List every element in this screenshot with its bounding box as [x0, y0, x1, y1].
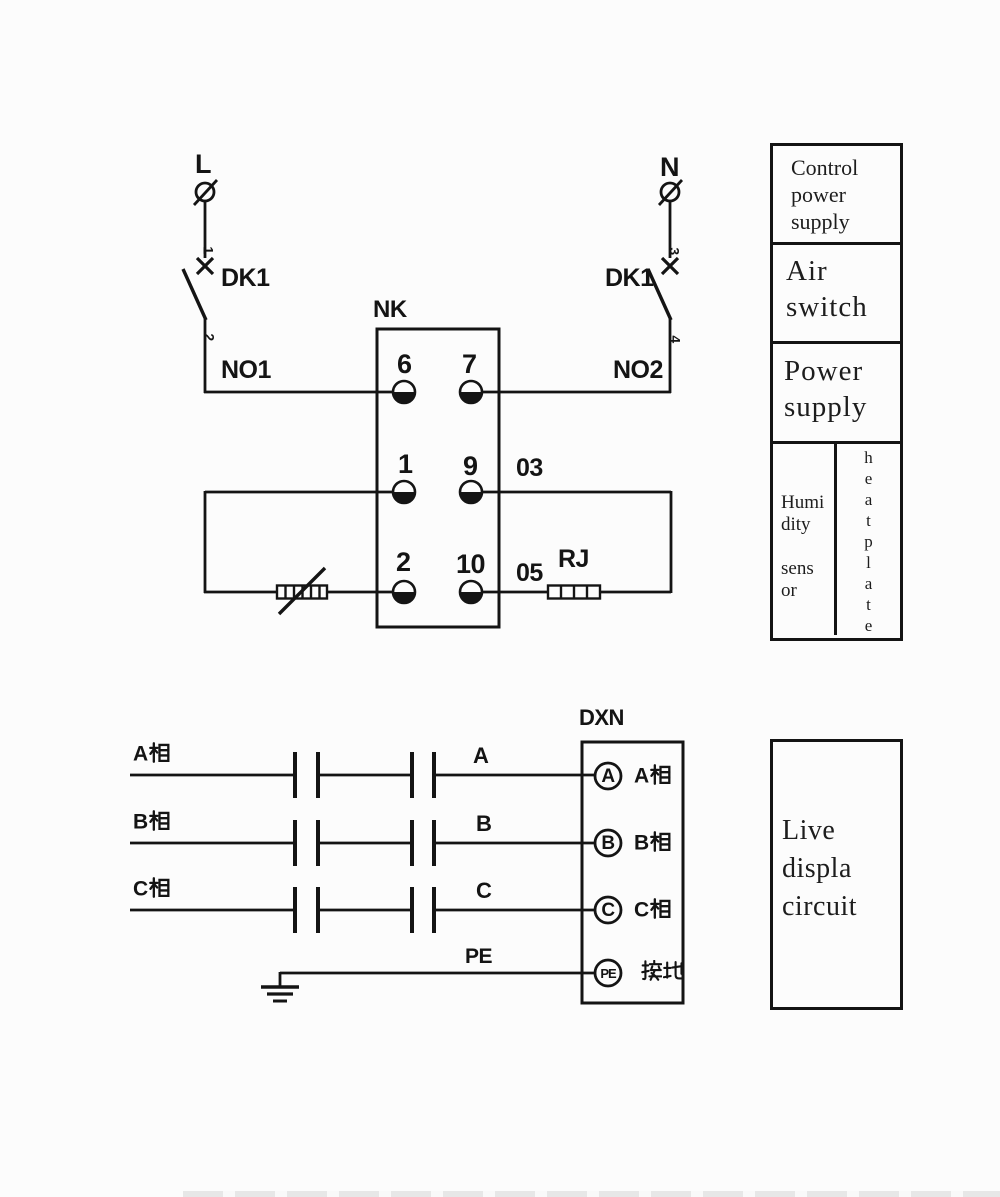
legend-line: sens: [781, 558, 834, 580]
legend-panel: Control power supply Air switch Power su…: [770, 143, 903, 641]
live-display-panel: Live displa circuit: [770, 739, 903, 1010]
dxn-terminal-b-letter: B: [595, 834, 621, 853]
wire-label-pe: PE: [465, 946, 492, 967]
breaker-contact-icon: [197, 258, 213, 274]
cjk-glyph: [149, 742, 170, 763]
nk-terminal-1-label: 1: [398, 451, 413, 478]
legend-letter: a: [837, 489, 900, 510]
nk-terminal-9-label: 9: [463, 453, 478, 480]
phase-a-line: [130, 752, 597, 798]
legend-letter: t: [837, 594, 900, 615]
ground-icon: [261, 987, 299, 1001]
dxn-unit-label: DXN: [579, 707, 624, 729]
terminal-2-icon: [393, 581, 415, 603]
cjk-glyph: [650, 898, 671, 919]
cjk-glyph: [663, 960, 684, 981]
heater-resistor-icon: [548, 586, 600, 599]
legend-control-power-supply: Control power supply: [773, 146, 900, 245]
legend-power-supply: Power supply: [773, 344, 900, 444]
cjk-glyph: [641, 960, 662, 981]
cjk-glyph: [149, 877, 170, 898]
legend-heat-plate: h e a t p l a t e: [837, 444, 900, 635]
phase-c-source-label: C: [133, 877, 170, 899]
legend-line: or: [781, 580, 834, 602]
dxn-row-c-label: C: [634, 898, 671, 920]
phase-b-line: [130, 820, 597, 866]
legend-letter: e: [837, 615, 900, 636]
pe-ground-line: [261, 972, 597, 1001]
breaker-label-right: DK1: [605, 266, 654, 291]
node-label-no1: NO1: [221, 358, 271, 383]
legend-sensor-heatplate: Humi dity sens or h e a t p l a t e: [773, 444, 900, 635]
wire-label-b: B: [476, 813, 491, 835]
legend-air-switch: Air switch: [773, 245, 900, 344]
cjk-glyph: [650, 831, 671, 852]
live-display-line: circuit: [782, 888, 900, 926]
legend-letter: t: [837, 510, 900, 531]
dxn-row-b-label: B: [634, 831, 671, 853]
terminal-1-icon: [393, 481, 415, 503]
breaker-pin-4: 4: [669, 335, 683, 342]
dxn-terminal-c-letter: C: [595, 901, 621, 920]
terminal-7-icon: [460, 381, 482, 403]
live-branch: [183, 180, 406, 393]
dxn-terminal-a-letter: A: [595, 767, 621, 786]
breaker-arm-icon: [183, 269, 206, 320]
legend-humidity-sensor: Humi dity sens or: [773, 444, 837, 635]
cjk-glyph: [149, 810, 170, 831]
breaker-pin-3: 3: [668, 247, 682, 254]
legend-line: supply: [784, 389, 900, 425]
nk-terminal-10-label: 10: [456, 551, 485, 578]
legend-line: Air: [786, 253, 900, 289]
breaker-contact-icon: [662, 258, 678, 274]
scan-artifact-strip: [183, 1191, 1000, 1197]
legend-letter: e: [837, 468, 900, 489]
legend-letter: h: [837, 447, 900, 468]
legend-letter: p: [837, 531, 900, 552]
breaker-label-left: DK1: [221, 266, 270, 291]
wire-label-c: C: [476, 880, 491, 902]
breaker-pin-1: 1: [202, 246, 216, 253]
humidity-sensor-icon: [277, 568, 327, 614]
legend-letter: l: [837, 552, 900, 573]
wire-label-03: 03: [516, 456, 543, 481]
phase-a-source-label: A: [133, 742, 170, 764]
live-display-line: Live: [782, 812, 900, 850]
wire-label-a: A: [473, 745, 488, 767]
breaker-pin-2: 2: [203, 333, 217, 340]
node-label-no2: NO2: [613, 358, 663, 383]
neutral-phase-label: N: [660, 154, 679, 181]
legend-line: Humi: [781, 492, 834, 514]
dxn-row-pe-label: [640, 960, 684, 982]
nk-terminal-7-label: 7: [462, 351, 477, 378]
live-phase-label: L: [195, 151, 211, 178]
legend-line: supply: [791, 208, 900, 235]
nk-controller-box: [377, 329, 499, 627]
heater-label-rj: RJ: [558, 547, 589, 572]
legend-line: dity: [781, 514, 834, 536]
legend-line: Power: [784, 353, 900, 389]
terminal-6-icon: [393, 381, 415, 403]
legend-letter: a: [837, 573, 900, 594]
wire-label-05: 05: [516, 561, 543, 586]
wiring-diagram: L N 1 2 3 4 DK1 DK1 NO1 NO2 NK 6 7 1 9 2…: [0, 0, 1000, 1197]
dxn-row-a-label: A: [634, 764, 671, 786]
phase-c-line: [130, 887, 597, 933]
dxn-terminal-pe-letter: PE: [595, 967, 621, 980]
legend-line: switch: [786, 289, 900, 325]
legend-line: Control: [791, 154, 900, 181]
terminal-9-icon: [460, 481, 482, 503]
terminal-10-icon: [460, 581, 482, 603]
nk-terminal-2-label: 2: [396, 549, 411, 576]
nk-terminal-6-label: 6: [397, 351, 412, 378]
cjk-glyph: [650, 764, 671, 785]
legend-line: power: [791, 181, 900, 208]
nk-controller-label: NK: [373, 298, 407, 322]
live-display-line: displa: [782, 850, 900, 888]
phase-b-source-label: B: [133, 810, 170, 832]
